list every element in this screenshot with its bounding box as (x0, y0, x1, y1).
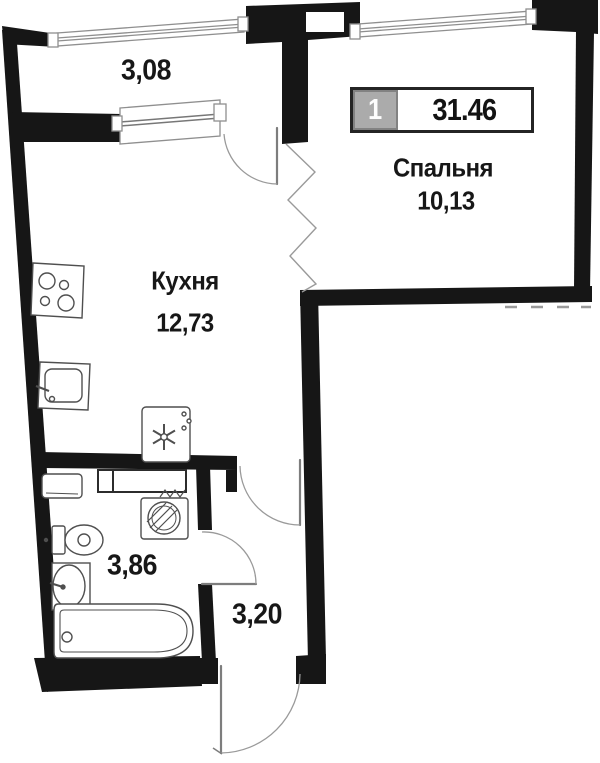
hallway-area-label: 3,20 (232, 599, 282, 632)
bathroom-cabinet-icon (42, 474, 82, 498)
kitchen-sink-icon (36, 362, 90, 410)
kitchen-area-label: 12,73 (156, 308, 214, 339)
balcony-window (48, 17, 248, 47)
kitchen-window (112, 100, 226, 144)
bathtub-icon (54, 604, 193, 658)
toilet-icon (45, 525, 104, 555)
bathroom-door (202, 532, 256, 584)
washing-machine-icon (141, 498, 188, 539)
entrance-door (213, 666, 300, 754)
rooms-count-badge: 1 (353, 90, 398, 130)
bedroom-area-label: 10,13 (417, 186, 475, 217)
kitchen-name-label: Кухня (151, 266, 219, 297)
zigzag-partition (286, 144, 316, 292)
bedroom-name-label: Спальня (393, 153, 493, 184)
balcony-area-label: 3,08 (121, 55, 171, 88)
bedroom-window (350, 9, 536, 39)
total-area-badge: 31.46 (398, 90, 531, 130)
vent-duct-icon (98, 470, 186, 492)
rooms-count-value: 1 (368, 94, 382, 127)
kitchen-hallway-door (240, 460, 300, 525)
total-area-value: 31.46 (433, 92, 497, 128)
apartment-info-badge: 1 31.46 (350, 87, 534, 133)
wall-niche (306, 12, 344, 32)
washbasin-icon (50, 563, 90, 610)
stove-icon (31, 263, 84, 318)
bathroom-area-label: 3,86 (107, 550, 157, 583)
balcony-door (224, 128, 277, 184)
floor-plan: 3,08 Спальня 10,13 Кухня 12,73 3,86 3,20… (0, 0, 600, 763)
refrigerator-icon (142, 407, 191, 462)
